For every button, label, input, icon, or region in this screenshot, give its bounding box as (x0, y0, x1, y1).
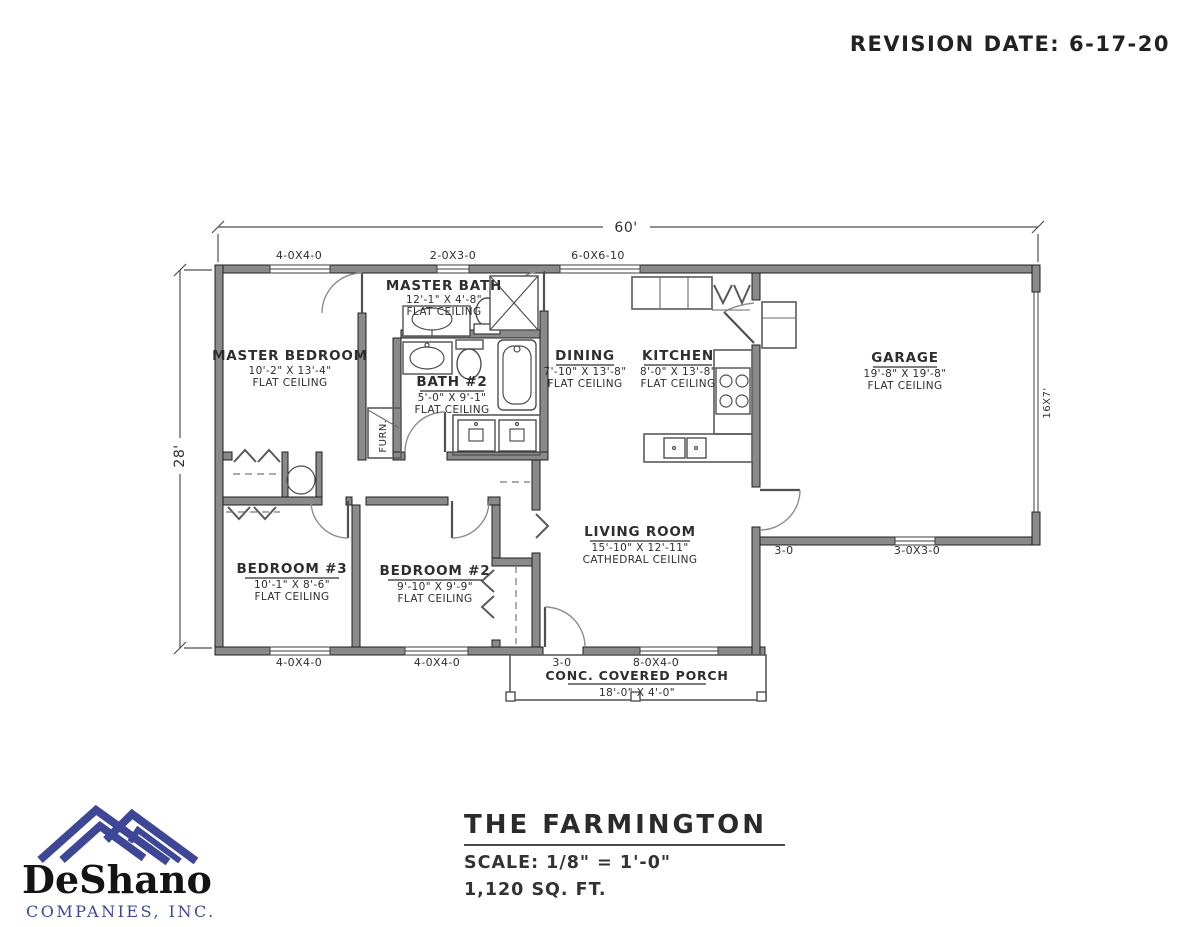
washer-dryer (453, 415, 540, 455)
svg-text:5'-0" X 9'-1": 5'-0" X 9'-1" (418, 392, 487, 404)
svg-text:CATHEDRAL CEILING: CATHEDRAL CEILING (583, 554, 698, 566)
porch-size: 18'-0" X 4'-0" (599, 687, 675, 699)
porch-post (757, 692, 766, 701)
svg-text:FLAT CEILING: FLAT CEILING (252, 377, 327, 389)
porch-label: CONC. COVERED PORCH (545, 668, 728, 683)
refrigerator (762, 302, 796, 348)
svg-text:9'-10" X 9'-9": 9'-10" X 9'-9" (397, 581, 473, 593)
svg-text:FLAT CEILING: FLAT CEILING (640, 378, 715, 390)
window (437, 265, 469, 273)
windows (270, 265, 1038, 655)
porch-post (506, 692, 515, 701)
label-living-room: LIVING ROOM 15'-10" X 12'-11" CATHEDRAL … (583, 524, 698, 566)
plan-scale: SCALE: 1/8" = 1'-0" (464, 853, 785, 873)
label-bedroom3: BEDROOM #3 10'-1" X 8'-6" FLAT CEILING (237, 561, 348, 603)
label-dining: DINING 7'-10" X 13'-8" FLAT CEILING (544, 348, 627, 390)
svg-text:MASTER BEDROOM: MASTER BEDROOM (212, 348, 368, 364)
front-entry-door (545, 607, 585, 647)
svg-text:FLAT CEILING: FLAT CEILING (547, 378, 622, 390)
svg-text:BATH #2: BATH #2 (416, 374, 487, 390)
svg-text:19'-8" X 19'-8": 19'-8" X 19'-8" (864, 368, 947, 380)
room-labels: MASTER BATH 12'-1" X 4'-8" FLAT CEILING … (212, 278, 946, 605)
window (640, 647, 718, 655)
svg-text:GARAGE: GARAGE (871, 350, 938, 366)
plan-area: 1,120 SQ. FT. (464, 880, 785, 900)
svg-text:FLAT CEILING: FLAT CEILING (867, 380, 942, 392)
svg-text:BEDROOM #3: BEDROOM #3 (237, 561, 348, 577)
svg-text:LIVING ROOM: LIVING ROOM (584, 524, 696, 540)
svg-text:7'-10" X 13'-8": 7'-10" X 13'-8" (544, 366, 627, 378)
label-kitchen: KITCHEN 8'-0" X 13'-8" FLAT CEILING (640, 348, 716, 390)
company-logo: DeShano COMPANIES, INC. (18, 800, 248, 925)
window-label: 6-0X6-10 (571, 249, 625, 262)
garage-door (1034, 292, 1038, 512)
doors (311, 271, 800, 647)
exterior-walls (215, 265, 1040, 655)
bath2-door (405, 412, 445, 452)
kitchen-counter-top (632, 277, 712, 309)
bath2-tub (498, 340, 536, 410)
window-label: 3-0X3-0 (894, 544, 940, 557)
svg-text:FLAT CEILING: FLAT CEILING (254, 591, 329, 603)
kitchen-sink (644, 434, 752, 462)
svg-text:KITCHEN: KITCHEN (642, 348, 714, 364)
svg-text:15'-10" X 12'-11": 15'-10" X 12'-11" (591, 542, 688, 554)
svg-text:10'-1" X 8'-6": 10'-1" X 8'-6" (254, 579, 330, 591)
logo-subtitle: COMPANIES, INC. (26, 902, 216, 921)
window (405, 647, 468, 655)
plan-title: THE FARMINGTON (464, 810, 785, 846)
svg-text:BEDROOM #2: BEDROOM #2 (380, 563, 491, 579)
label-bath2: BATH #2 5'-0" X 9'-1" FLAT CEILING (414, 374, 489, 416)
svg-text:FLAT CEILING: FLAT CEILING (406, 306, 481, 318)
overall-depth-dimension: 28' (172, 444, 188, 467)
hall-fixture (287, 466, 315, 494)
window-label: 4-0X4-0 (276, 249, 322, 262)
bedroom3-door (311, 501, 348, 538)
window-label: 4-0X4-0 (414, 656, 460, 669)
floor-plan-drawing: 60' 28' 16X7' (0, 0, 1200, 927)
opening-labels: 4-0X4-0 2-0X3-0 6-0X6-10 4-0X4-0 4-0X4-0… (276, 249, 940, 669)
garage-service-door (760, 490, 800, 530)
door-label: 3-0 (774, 544, 793, 557)
stove (714, 350, 752, 434)
svg-text:8'-0" X 13'-8": 8'-0" X 13'-8" (640, 366, 716, 378)
svg-text:10'-2" X 13'-4": 10'-2" X 13'-4" (249, 365, 332, 377)
logo-name: DeShano (22, 857, 212, 902)
svg-text:DINING: DINING (555, 348, 615, 364)
bedroom2-door (452, 501, 489, 538)
label-master-bedroom: MASTER BEDROOM 10'-2" X 13'-4" FLAT CEIL… (212, 348, 368, 389)
garage-door-size: 16X7' (1042, 387, 1053, 418)
svg-text:FLAT CEILING: FLAT CEILING (397, 593, 472, 605)
overall-width-dimension: 60' (614, 220, 637, 236)
floor-plan-sheet: REVISION DATE: 6-17-20 60' 28' 16X7' (0, 0, 1200, 927)
window-label: 4-0X4-0 (276, 656, 322, 669)
label-garage: GARAGE 19'-8" X 19'-8" FLAT CEILING (864, 350, 947, 392)
window (270, 647, 330, 655)
window (560, 265, 640, 273)
window-label: 8-0X4-0 (633, 656, 679, 669)
window (270, 265, 330, 273)
svg-text:MASTER BATH: MASTER BATH (386, 278, 502, 294)
svg-text:12'-1" X 4'-8": 12'-1" X 4'-8" (406, 294, 482, 306)
master-bedroom-door (322, 273, 362, 313)
svg-text:FLAT CEILING: FLAT CEILING (414, 404, 489, 416)
door-label: 3-0 (552, 656, 571, 669)
title-block: THE FARMINGTON SCALE: 1/8" = 1'-0" 1,120… (464, 810, 785, 900)
furnace-label: FURN. (378, 419, 389, 452)
label-bedroom2: BEDROOM #2 9'-10" X 9'-9" FLAT CEILING (380, 563, 491, 605)
window-label: 2-0X3-0 (430, 249, 476, 262)
bath2-sink (403, 342, 452, 374)
kitchen-garage-door (724, 303, 754, 343)
